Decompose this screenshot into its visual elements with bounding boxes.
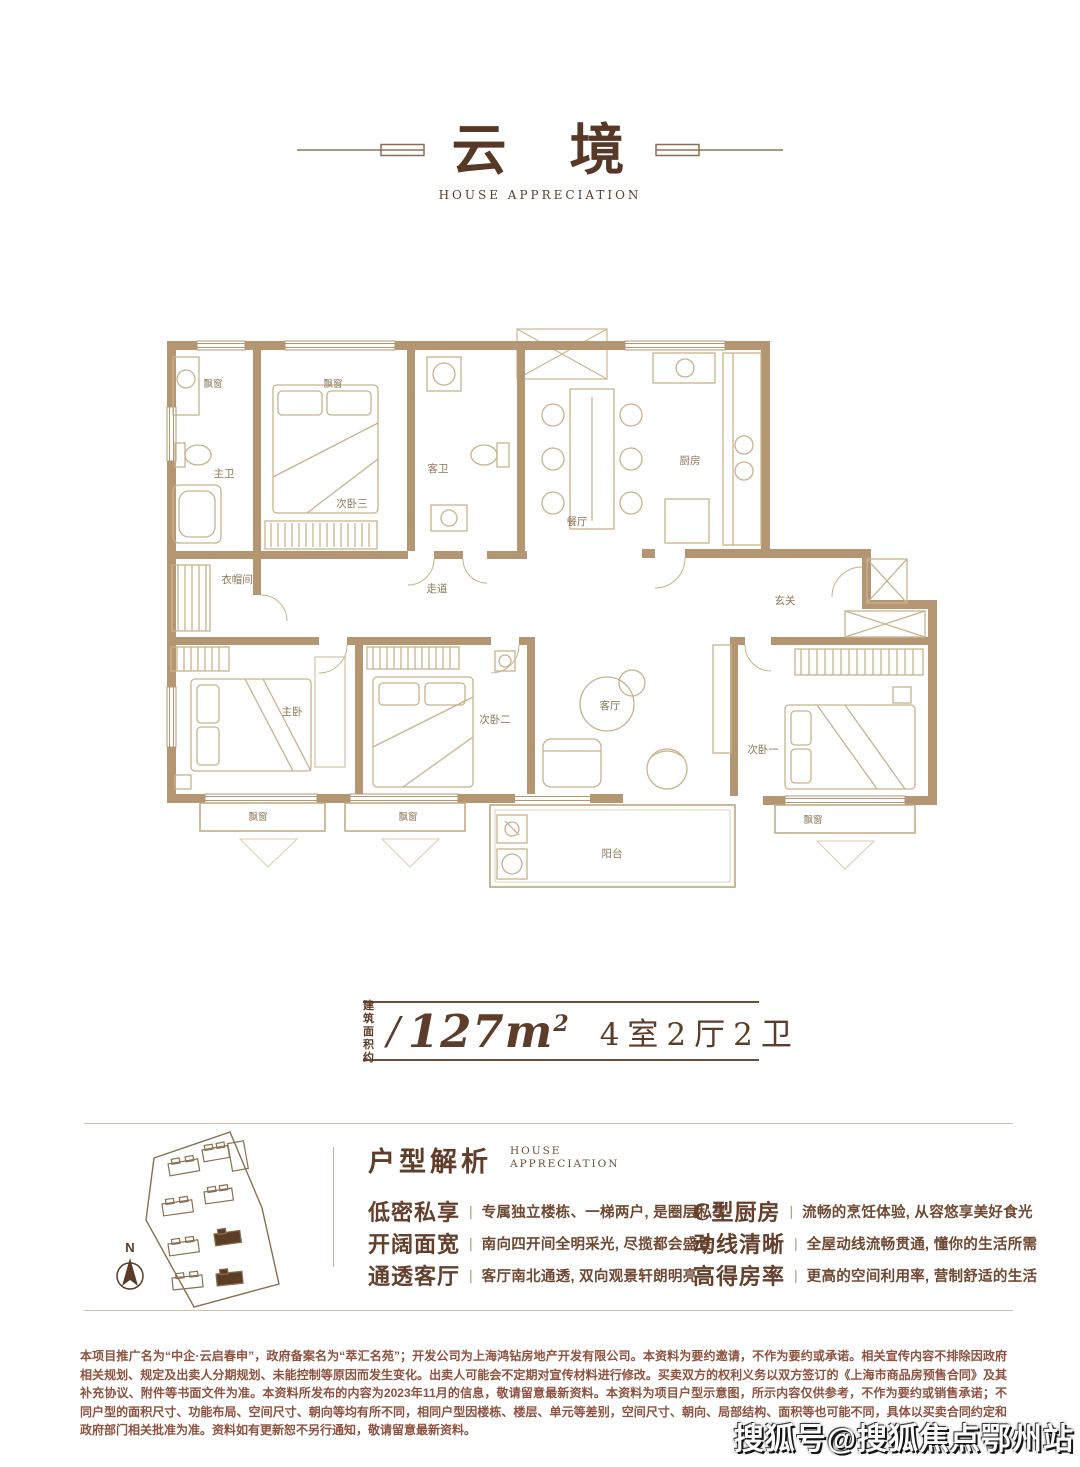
- room-label-living: 客厅: [600, 699, 621, 712]
- brochure-page: 云 境 HOUSE APPRECIATION: [0, 0, 1080, 1467]
- area-value-number: 127m: [408, 1005, 554, 1058]
- site-buildings: [161, 1141, 248, 1290]
- door-arcs: [261, 558, 862, 673]
- room-label-bedroom3: 次卧三: [336, 497, 368, 510]
- room-label-bay-window: 飘窗: [323, 378, 342, 390]
- door-gaps: [253, 549, 855, 803]
- feature-heading: 高得房率: [693, 1259, 785, 1291]
- analysis-header: 户型解析 HOUSE APPRECIATION: [368, 1140, 1016, 1179]
- room-label-corridor: 走道: [427, 582, 448, 595]
- elevator-shaft: [517, 329, 607, 379]
- area-summary: 建筑 面积约 / 127m2 4室2厅2卫: [363, 1001, 759, 1061]
- walls-layer: [167, 341, 937, 805]
- room-label-balcony: 阳台: [602, 847, 623, 860]
- analysis-title: 户型解析: [368, 1140, 492, 1179]
- room-label-kitchen: 厨房: [680, 454, 701, 467]
- page-title: 云 境: [451, 120, 628, 180]
- feature-divider: |: [794, 1235, 798, 1251]
- page-subtitle: HOUSE APPRECIATION: [439, 188, 642, 202]
- feature-item: 通透客厅 | 客厅南北通透, 双向观景轩朗明亮: [368, 1259, 693, 1291]
- feature-divider: |: [790, 1203, 794, 1219]
- feature-description: 更高的空间利用率, 营制舒适的生活: [807, 1265, 1038, 1286]
- divider-top: [84, 1123, 1013, 1124]
- feature-divider: |: [469, 1235, 473, 1251]
- room-labels: 飘窗 飘窗 主卫 次卧三 客卫 餐厅 厨房 衣帽间 走道 玄关 主卧 次卧二 客…: [203, 378, 822, 860]
- compass-label: N: [125, 1240, 134, 1255]
- section-vertical-divider: [333, 1147, 334, 1267]
- feature-description: 专属独立楼栋、一梯两户, 是圈层私享: [482, 1201, 727, 1222]
- area-value: 127m2: [408, 1005, 570, 1058]
- feature-item: 高得房率 | 更高的空间利用率, 营制舒适的生活: [693, 1259, 1037, 1291]
- feature-description: 流畅的烹饪体验, 从容悠享美好食光: [802, 1201, 1033, 1222]
- area-prefix-line1: 建筑: [363, 999, 375, 1025]
- analysis-section: 户型解析 HOUSE APPRECIATION 低密私享 | 专属独立楼栋、一梯…: [368, 1140, 1016, 1291]
- feature-heading: 动线清晰: [693, 1227, 785, 1259]
- area-value-superscript: 2: [553, 1011, 569, 1037]
- feature-description: 全屋动线流畅贯通, 懂你的生活所需: [807, 1233, 1038, 1254]
- site-boundary: [146, 1132, 279, 1307]
- divider-bottom: [84, 1310, 1013, 1311]
- feature-divider: |: [469, 1267, 473, 1283]
- watermark: 搜狐号@搜狐焦点鄂州站: [734, 1414, 1074, 1458]
- feature-divider: |: [794, 1267, 798, 1283]
- feature-list: 低密私享 | 专属独立楼栋、一梯两户, 是圈层私享 开阔面宽 | 南向四开间全明…: [368, 1195, 1016, 1291]
- analysis-subtitle-line1: HOUSE: [510, 1145, 619, 1158]
- room-label-bedroom1: 次卧一: [747, 743, 779, 756]
- room-label-bay-window: 飘窗: [203, 378, 222, 390]
- floor-plan-drawing: 飘窗 飘窗 主卫 次卧三 客卫 餐厅 厨房 衣帽间 走道 玄关 主卧 次卧二 客…: [145, 326, 955, 938]
- feature-description: 客厅南北通透, 双向观景轩朗明亮: [482, 1265, 698, 1286]
- analysis-subtitle: HOUSE APPRECIATION: [510, 1145, 619, 1171]
- feature-heading: C型厨房: [693, 1195, 781, 1227]
- feature-heading: 通透客厅: [368, 1259, 460, 1291]
- feature-item: C型厨房 | 流畅的烹饪体验, 从容悠享美好食光: [693, 1195, 1037, 1227]
- area-prefix: 建筑 面积约: [363, 999, 375, 1064]
- room-label-bay-window: 飘窗: [398, 811, 417, 823]
- room-label-bay-window: 飘窗: [248, 811, 267, 823]
- area-separator: /: [387, 1009, 400, 1053]
- feature-heading: 低密私享: [368, 1195, 460, 1227]
- feature-divider: |: [469, 1203, 473, 1219]
- feature-item: 低密私享 | 专属独立楼栋、一梯两户, 是圈层私享: [368, 1195, 693, 1227]
- room-count: 4室2厅2卫: [600, 1009, 800, 1054]
- bay-windows: [200, 803, 915, 869]
- feature-item: 开阔面宽 | 南向四开间全明采光, 尽揽都会盛景: [368, 1227, 693, 1259]
- title-ornament-right: [653, 142, 783, 158]
- room-label-bedroom2: 次卧二: [479, 713, 511, 726]
- feature-description: 南向四开间全明采光, 尽揽都会盛景: [482, 1233, 713, 1254]
- site-plan-sketch: N: [112, 1126, 302, 1311]
- room-label-guest-bath: 客卫: [428, 462, 449, 475]
- area-prefix-line2: 面积约: [363, 1025, 375, 1064]
- compass-icon: N: [117, 1240, 143, 1289]
- room-label-foyer: 玄关: [775, 594, 796, 607]
- feature-heading: 开阔面宽: [368, 1227, 460, 1259]
- room-label-dining: 餐厅: [567, 515, 588, 528]
- title-ornament-left: [297, 142, 427, 158]
- feature-item: 动线清晰 | 全屋动线流畅贯通, 懂你的生活所需: [693, 1227, 1037, 1259]
- analysis-subtitle-line2: APPRECIATION: [510, 1158, 619, 1171]
- room-label-master-bath: 主卫: [214, 468, 235, 480]
- room-label-master-bedroom: 主卧: [282, 705, 303, 718]
- room-label-cloakroom: 衣帽间: [221, 573, 253, 586]
- header: 云 境 HOUSE APPRECIATION: [0, 120, 1080, 202]
- room-label-bay-window: 飘窗: [803, 814, 822, 826]
